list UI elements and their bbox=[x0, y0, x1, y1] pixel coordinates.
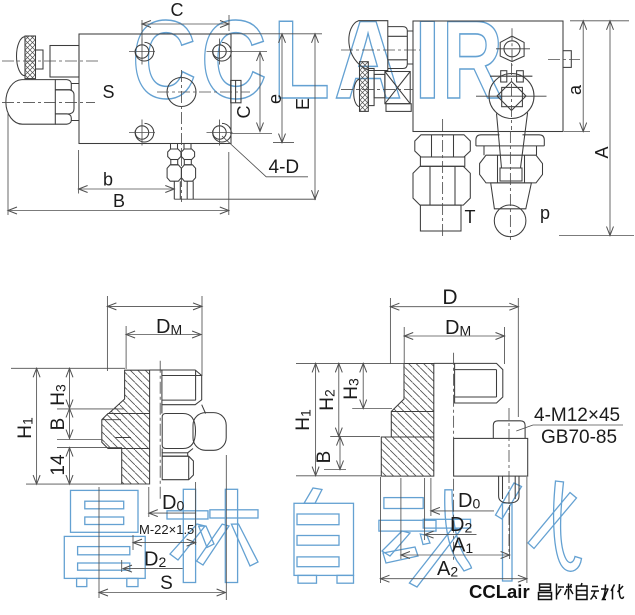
svg-text:4-M12×45: 4-M12×45 bbox=[534, 405, 620, 426]
svg-text:4-D: 4-D bbox=[269, 157, 300, 178]
svg-text:I: I bbox=[414, 0, 441, 123]
svg-text:B: B bbox=[314, 451, 335, 464]
svg-text:M-22×1.5: M-22×1.5 bbox=[139, 522, 194, 537]
svg-text:p: p bbox=[540, 203, 550, 223]
svg-text:T: T bbox=[465, 207, 476, 227]
svg-text:C: C bbox=[201, 0, 267, 122]
svg-text:14: 14 bbox=[48, 454, 69, 476]
svg-text:B: B bbox=[113, 191, 125, 211]
svg-text:E: E bbox=[293, 98, 313, 110]
svg-text:CCLair: CCLair bbox=[469, 581, 530, 602]
svg-text:a: a bbox=[565, 84, 585, 95]
svg-text:S: S bbox=[102, 82, 114, 102]
svg-text:R: R bbox=[442, 0, 503, 122]
svg-text:D: D bbox=[442, 286, 457, 309]
svg-text:GB70-85: GB70-85 bbox=[541, 427, 617, 448]
svg-text:B: B bbox=[48, 418, 69, 431]
svg-text:e: e bbox=[265, 94, 285, 104]
svg-text:C: C bbox=[171, 0, 184, 20]
svg-text:S: S bbox=[160, 573, 173, 594]
svg-text:A: A bbox=[592, 146, 612, 158]
svg-text:b: b bbox=[103, 170, 113, 190]
svg-text:C: C bbox=[234, 106, 254, 119]
